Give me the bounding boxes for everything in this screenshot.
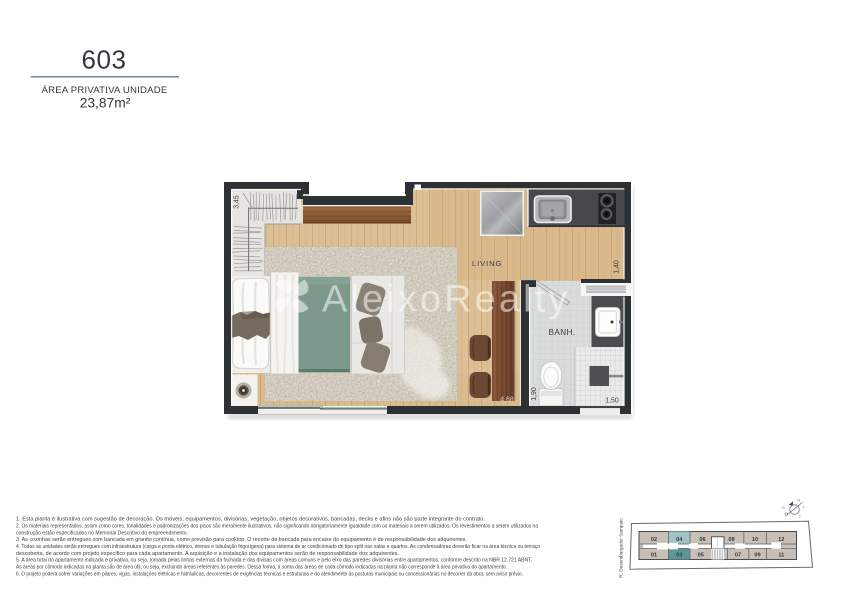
- svg-text:12: 12: [778, 537, 784, 543]
- svg-text:R. Desembargador Sampaio: R. Desembargador Sampaio: [619, 518, 624, 578]
- svg-text:02: 02: [651, 537, 657, 543]
- svg-text:L: L: [803, 505, 805, 509]
- svg-text:06: 06: [699, 537, 705, 543]
- svg-text:10: 10: [752, 537, 758, 543]
- svg-text:11: 11: [778, 553, 784, 559]
- svg-text:603: 603: [82, 45, 127, 75]
- svg-text:3. As cozinhas serão entregues: 3. As cozinhas serão entregues com banca…: [16, 537, 467, 543]
- svg-text:23,87m²: 23,87m²: [80, 96, 131, 111]
- svg-text:BANH.: BANH.: [549, 328, 576, 337]
- svg-text:construção estão especificados: construção estão especificados no Memori…: [16, 530, 188, 536]
- svg-text:04: 04: [676, 537, 683, 543]
- svg-text:1,90: 1,90: [531, 387, 538, 401]
- svg-text:O: O: [782, 506, 785, 510]
- svg-text:4,68: 4,68: [500, 397, 514, 404]
- svg-text:6. O projeto poderá sofrer var: 6. O projeto poderá sofrer variações em …: [16, 571, 523, 577]
- svg-text:09: 09: [754, 553, 760, 559]
- svg-text:4. Todas as unidades serão ent: 4. Todas as unidades serão entregues com…: [16, 544, 540, 550]
- svg-text:1. Esta planta é ilustrativa c: 1. Esta planta é ilustrativa com sugestã…: [16, 517, 485, 523]
- svg-text:01: 01: [651, 553, 657, 559]
- svg-text:LIVING: LIVING: [472, 259, 502, 268]
- svg-text:As áreas por cômodo indicadas: As áreas por cômodo indicadas na planta …: [16, 565, 507, 571]
- svg-text:1,40: 1,40: [614, 260, 621, 274]
- svg-text:5. A área total do apartamento: 5. A área total do apartamento indicada …: [16, 558, 532, 564]
- svg-text:08: 08: [728, 537, 734, 543]
- svg-text:03: 03: [676, 553, 682, 559]
- svg-text:2. Os materiais representados,: 2. Os materiais representados, assim com…: [16, 524, 538, 530]
- svg-text:AleixoRealty: AleixoRealty: [322, 279, 570, 321]
- svg-text:3,45: 3,45: [234, 195, 241, 209]
- svg-text:descoberta, de acordo com proj: descoberta, de acordo com projeto especí…: [16, 551, 399, 557]
- svg-text:1,50: 1,50: [605, 398, 619, 405]
- svg-text:05: 05: [698, 553, 704, 559]
- svg-text:07: 07: [735, 553, 741, 559]
